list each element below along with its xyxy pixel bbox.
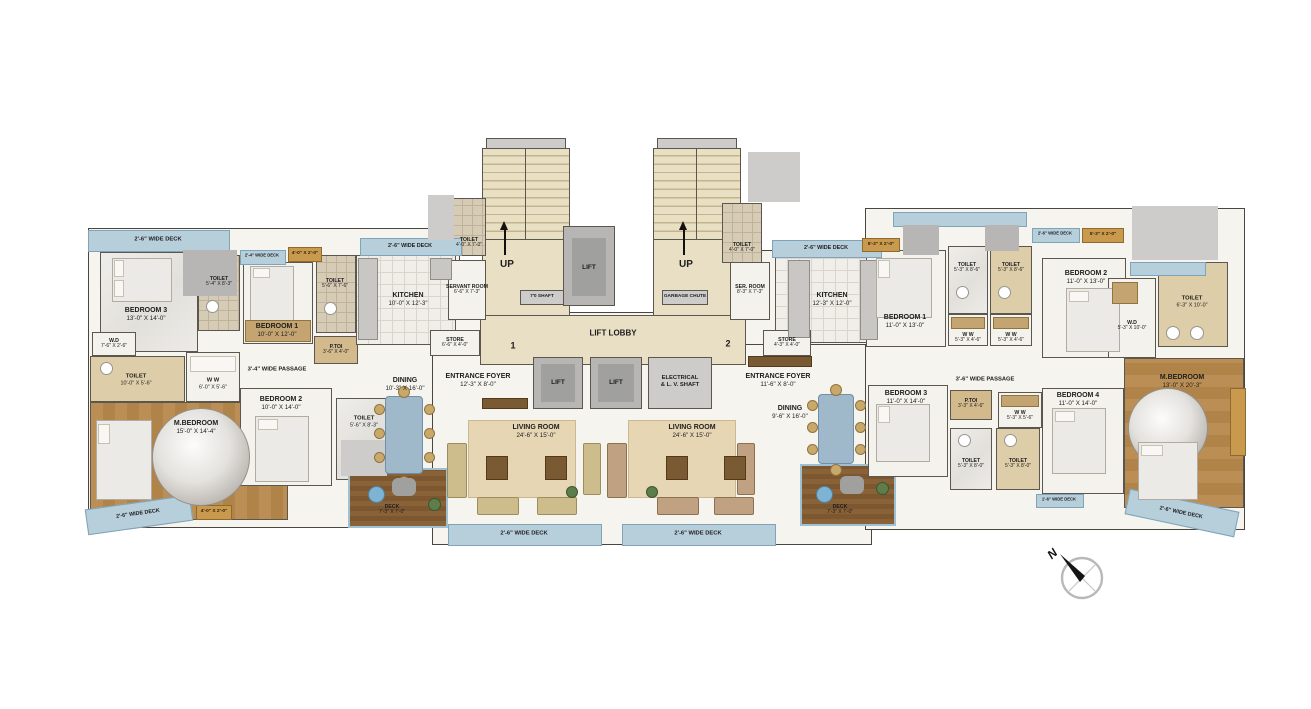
p-toi-right-label: P.TOI3'-3" X 4'-6" [958,398,984,410]
bedroom2-right-pillow [1069,291,1089,302]
gray-deck-right-core [748,152,800,202]
ww-left-shelf [190,356,236,372]
wd-right-box [1112,282,1138,304]
bedroom2-right-label: BEDROOM 211'-0" X 13'-0" [1065,270,1107,286]
deck-16-label: 1'-6" WIDE DECK [1042,498,1076,503]
deck-right-chair [840,476,864,494]
kitchen-left-label: KITCHEN10'-0" X 12'-3" [388,292,427,308]
dining-right-chair-head [830,384,842,396]
compass: N [1040,542,1116,610]
toilet-d-sink [1004,434,1017,447]
bedroom2-left-pillow [258,419,278,430]
dim-chip-left-top: 4'-0" X 2'-0" [288,247,322,262]
p-toi-left-label: P.TOI3'-6" X 4'-0" [323,344,349,356]
living-left-plant [566,486,578,498]
dim-chip-bottom-left: 4'-0" X 2'-0" [196,505,232,520]
gray-block-right-1 [903,225,939,255]
lift-a-label: LIFT [551,379,565,387]
dining-left-chair-3 [374,452,385,463]
passage-right-label: 3'-6" WIDE PASSAGE [956,377,1015,384]
deck-right-label: DECK7'-3" X 7'-0" [827,504,853,516]
lift-lobby-label: LIFT LOBBY [589,328,636,337]
floor-plan: UP UP LIFT 7'0 SHAFT GARBAGE CHUTE LIFT … [0,0,1311,709]
ww-c-right-label: W W5'-3" X 5'-6" [1007,410,1033,422]
servant-room-left-label: SERVANT ROOM6'-6" X 7'-3" [446,284,488,296]
compass-north-label: N [1044,545,1060,561]
store-left-label: STORE6'-6" X 4'-0" [442,337,468,349]
ww-b-shelf [993,317,1029,329]
gray-block-right-2 [985,225,1019,251]
dining-left-chair-2 [374,428,385,439]
bedroom1-right-label: BEDROOM 111'-0" X 13'-0" [884,314,926,330]
bedroom3-left-pillow [114,260,124,277]
dining-right-chair-5 [855,422,866,433]
deck-right-plant [876,482,889,495]
gray-deck-left-core [428,195,454,240]
lift-b-label: LIFT [609,379,623,387]
dining-right-chair-1 [807,400,818,411]
toilet-bed2-left-label: TOILET5'-6" X 8'-3" [350,415,378,428]
kitchen-left-counter [358,258,378,340]
shaft-label: 7'0 SHAFT [530,294,554,300]
living-right-sofa-side [607,443,627,498]
up-label-1: UP [500,259,514,271]
dining-left-chair-6 [424,452,435,463]
deck-left-chair [392,478,416,496]
m-bedroom-left-pillow [98,424,110,444]
up-label-2: UP [679,259,693,271]
dress-chip-right [1230,388,1246,456]
toilet-bed1-sink [324,302,337,315]
dim-chip-right-2: 5'-3" X 2'-0" [1082,228,1124,243]
ww-a-shelf [951,317,985,329]
garbage-chute-label: GARBAGE CHUTE [664,294,706,300]
bedroom1-left-label: BEDROOM 110'-0" X 12'-0" [256,323,298,339]
living-left-sofa-bottom2 [537,497,577,515]
unit1-marker: 1 [510,341,515,352]
living-left-sofa-side [447,443,467,498]
dining-right-chair-6 [855,444,866,455]
stair-toilet-right-label: TOILET4'-0" X 7'-0" [729,242,755,254]
toilet-b-right [990,246,1032,314]
deck-top-center-left-label: 2'-6" WIDE DECK [388,243,432,249]
dining-left-chair-5 [424,428,435,439]
living-left-sofa-side2 [583,443,601,495]
electrical-label: ELECTRICAL& L. V. SHAFT [661,375,699,389]
bedroom2-left-label: BEDROOM 210'-0" X 14'-0" [260,396,302,412]
deck-bottom-center-left-label: 2'-6" WIDE DECK [500,531,547,538]
foyer-left-label: ENTRANCE FOYER12'-3" X 8'-0" [446,373,511,389]
dining-left-chair-1 [374,404,385,415]
console-table-right [748,356,812,367]
bedroom3-right-pillow [878,406,890,423]
ww-left-label: W W6'-0" X 5'-6" [199,377,227,390]
wd-left-label: W.D7'-6" X 2'-6" [101,338,127,350]
deck-top-center-right-label: 2'-6" WIDE DECK [804,245,848,251]
toilet-bed3-sink [206,300,219,313]
m-bedroom-right-label: M.BEDROOM13'-0" X 20'-3" [1160,374,1204,390]
dining-left-table [385,396,423,474]
toilet-a-sink [956,286,969,299]
bedroom1-left-pillow [253,268,270,278]
bedroom4-pillow [1055,411,1075,422]
kitchen-right-counter1 [788,260,810,338]
up-arrow-1 [504,230,506,255]
stair2-divider [696,148,697,240]
toilet-master-right-sink2 [1190,326,1204,340]
deck-left-label: DECK7'-3" X 7'-0" [379,504,405,516]
dim-chip-right-1: 5'-3" X 2'-0" [862,238,900,252]
toilet-d-right-label: TOILET5'-3" X 8'-0" [1005,458,1031,470]
deck-small-right-label: 2'-6" WIDE DECK [1038,232,1072,237]
stair1-divider [525,148,526,240]
kitchen-right-label: KITCHEN12'-3" X 12'-0" [812,292,851,308]
kitchen-left-fridge [430,258,452,280]
toilet-bed1-left-label: TOILET5'-6" X 7'-6" [322,278,348,290]
dining-right-label: DINING9'-6" X 16'-0" [772,405,808,421]
ww-c-shelf [1001,395,1039,407]
living-right-coffee-table1 [666,456,688,480]
gray-block-top-left [183,250,237,296]
dining-right-chair-3 [807,444,818,455]
deck-small-left-label: 2'-4" WIDE DECK [245,254,279,259]
living-right-sofa-bottom1 [657,497,699,515]
dining-right-chair-foot [830,464,842,476]
dining-right-chair-2 [807,422,818,433]
stair-toilet-left-label: TOILET4'-0" X 7'-0" [456,237,482,249]
living-left-sofa-bottom1 [477,497,519,515]
toilet-bed1-left [316,255,356,333]
living-left-label: LIVING ROOM24'-6" X 15'-0" [512,424,559,440]
foyer-right-label: ENTRANCE FOYER11'-6" X 8'-0" [746,373,811,389]
unit2-marker: 2 [725,339,730,350]
toilet-master-right-label: TOILET6'-3" X 10'-0" [1176,295,1207,308]
toilet-b-sink [998,286,1011,299]
ww-b-right-label: W W5'-3" X 4'-6" [998,332,1024,344]
living-left-coffee-table2 [545,456,567,480]
wd-right-label: W.D5'-3" X 10'-0" [1118,320,1147,332]
bedroom3-right-label: BEDROOM 311'-0" X 14'-0" [885,390,927,406]
living-right-sofa-bottom2 [714,497,754,515]
dining-right-table [818,394,854,464]
bedroom1-right-pillow [878,260,890,278]
living-right-plant [646,486,658,498]
lift-center-label: LIFT [582,264,596,272]
console-table-left [482,398,528,409]
m-bedroom-right-pillow [1141,445,1163,456]
dining-left-label: DINING10'-3" X 16'-0" [385,377,424,393]
bedroom3-left-pillow-2 [114,280,124,297]
store-right-label: STORE4'-3" X 4'-0" [774,337,800,349]
up-arrow-2-head [679,221,687,230]
living-right-coffee-table2 [724,456,746,480]
toilet-a-right [948,246,988,314]
living-left-coffee-table1 [486,456,508,480]
toilet-c-right-label: TOILET5'-3" X 8'-0" [958,458,984,470]
deck-left-table [368,486,385,503]
deck-right-table [816,486,833,503]
bedroom3-left-label: BEDROOM 313'-0" X 14'-0" [125,307,167,323]
ser-room-right-label: SER. ROOM8'-3" X 7'-3" [735,284,765,296]
toilet-b-right-label: TOILET5'-3" X 8'-6" [998,262,1024,274]
toilet-a-right-label: TOILET5'-3" X 8'-6" [954,262,980,274]
toilet-master-left-label: TOILET10'-0" X 5'-6" [120,373,151,386]
ww-a-right-label: W W5'-3" X 4'-6" [955,332,981,344]
deck-top-left-label: 2'-6" WIDE DECK [134,237,181,244]
toilet-master-left-sink [100,362,113,375]
toilet-c-sink [958,434,971,447]
deck-left-plant [428,498,441,511]
dining-right-chair-4 [855,400,866,411]
up-arrow-2 [683,230,685,255]
deck-bottom-center-right-label: 2'-6" WIDE DECK [674,531,721,538]
toilet-bed3-left-label: TOILET5'-4" X 8'-3" [206,276,232,288]
bedroom4-label: BEDROOM 411'-0" X 14'-0" [1057,392,1099,408]
deck-strip-top-right [1130,262,1206,276]
dining-left-chair-4 [424,404,435,415]
m-bedroom-left-label: M.BEDROOM15'-0" X 14'-4" [174,420,218,436]
up-arrow-1-head [500,221,508,230]
toilet-master-right-sink1 [1166,326,1180,340]
gray-block-top-right-corner [1132,206,1218,260]
living-right-label: LIVING ROOM24'-6" X 15'-0" [668,424,715,440]
passage-left-label: 3'-4" WIDE PASSAGE [248,367,307,374]
